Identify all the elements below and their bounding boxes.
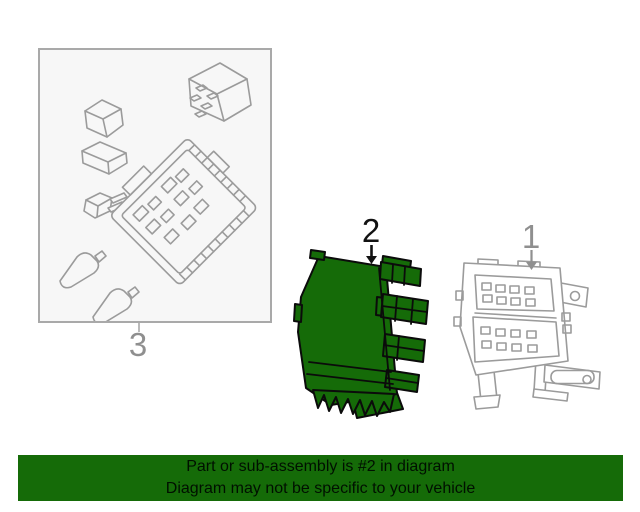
part-3-callout: 3 (116, 327, 160, 363)
part-1-arrow-icon (523, 250, 540, 271)
relay-small-cube-icon (85, 100, 123, 137)
banner-line1: Part or sub-assembly is #2 in diagram (18, 456, 623, 478)
flat-relay-icon (82, 142, 127, 174)
note-banner: Part or sub-assembly is #2 in diagram Di… (18, 455, 623, 501)
bulb-icon (60, 251, 106, 288)
part-2-callout: 2 (349, 213, 393, 249)
part-2-body-control-module-drawing (293, 242, 438, 422)
part-3-fuse-box-kit-drawing (40, 50, 270, 321)
banner-line2: Diagram may not be specific to your vehi… (18, 478, 623, 500)
relay-cube-icon (189, 63, 251, 121)
parts-diagram-image[interactable]: 3 2 (0, 0, 640, 512)
part-1-fuse-block-drawing (448, 255, 613, 415)
bulb-icon (93, 287, 139, 321)
part-2-arrow-icon (363, 245, 380, 265)
fuse-block-underside-icon (102, 124, 264, 286)
part-3-group-box (38, 48, 272, 323)
